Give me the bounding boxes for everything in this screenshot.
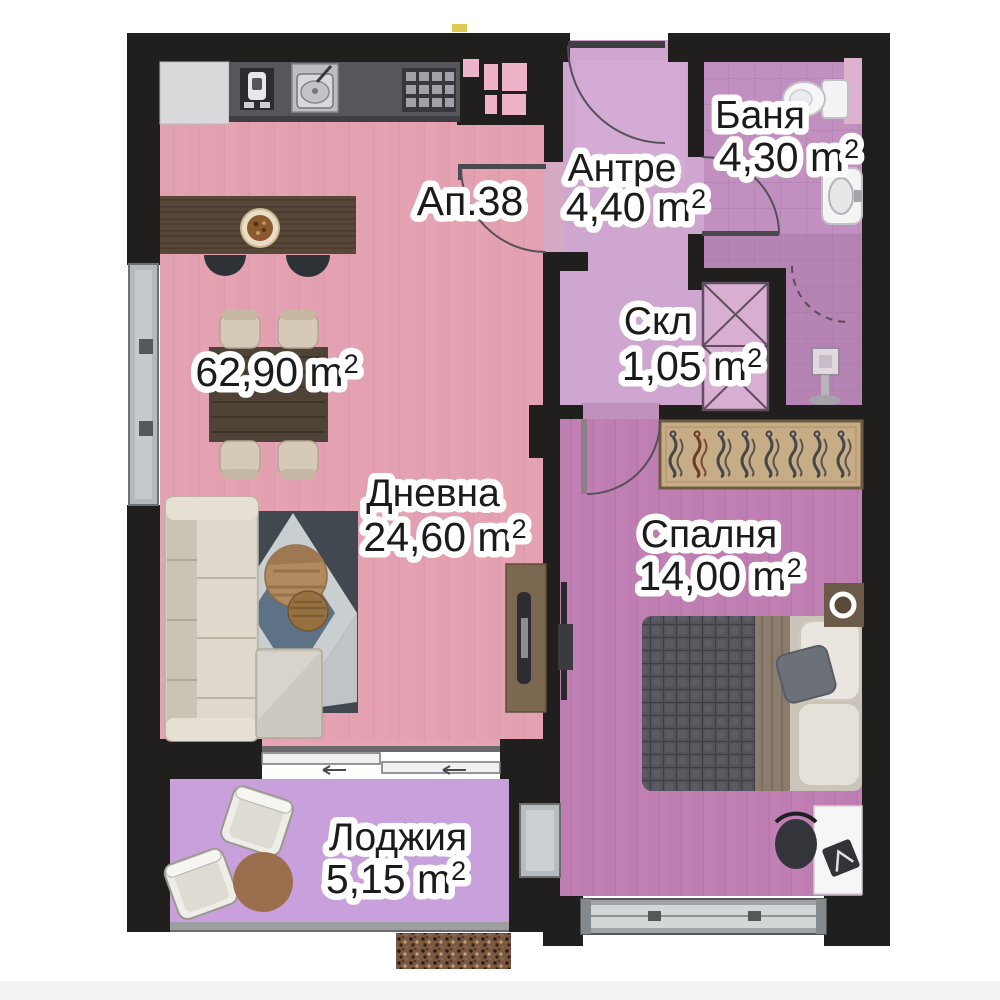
svg-text:Баня: Баня: [715, 94, 805, 137]
svg-text:4,30 m2: 4,30 m2: [719, 134, 859, 180]
svg-text:62,90 m2: 62,90 m2: [195, 349, 358, 395]
svg-text:1,05 m2: 1,05 m2: [622, 343, 762, 389]
svg-text:Спалня: Спалня: [641, 513, 777, 556]
svg-text:24,60 m2: 24,60 m2: [363, 514, 526, 560]
svg-text:4,40 m2: 4,40 m2: [566, 184, 706, 230]
svg-text:Лоджия: Лоджия: [329, 816, 467, 859]
svg-text:Ап.38: Ап.38: [417, 178, 524, 224]
svg-text:Дневна: Дневна: [366, 472, 500, 515]
svg-text:5,15 m2: 5,15 m2: [326, 856, 466, 902]
svg-text:14,00 m2: 14,00 m2: [638, 553, 801, 599]
svg-text:Скл: Скл: [624, 300, 692, 343]
